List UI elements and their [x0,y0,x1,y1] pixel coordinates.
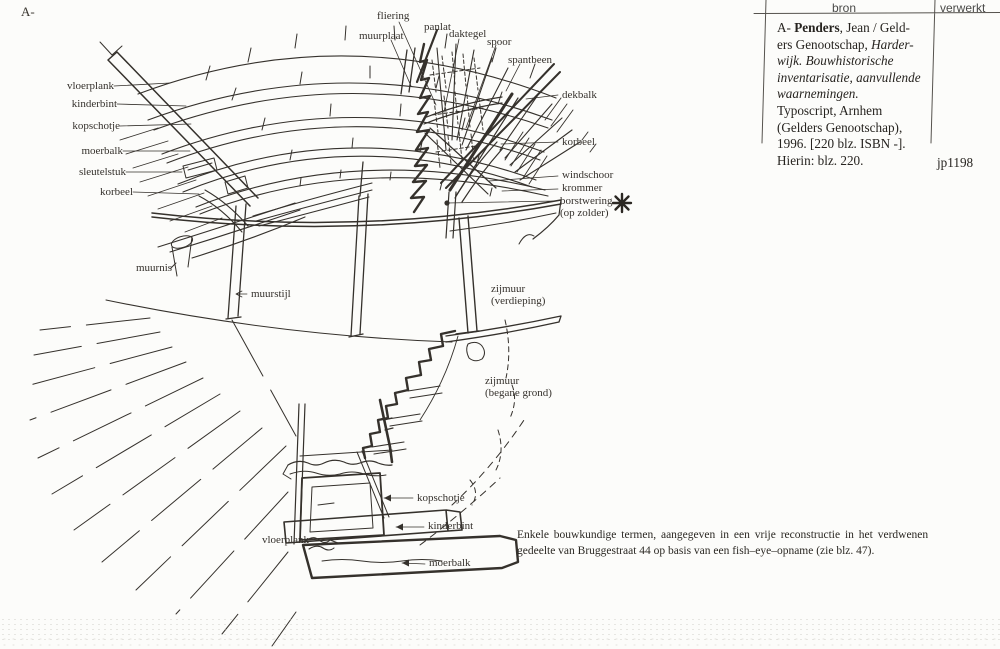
citation-author: Penders [794,20,839,35]
citation-pages: Hierin: blz. 220. [777,153,947,170]
label-muurstijl: muurstijl [251,288,291,300]
label-sleutelstuk: sleutelstuk [30,166,126,178]
label-vloerplank-top: vloerplank [30,80,114,92]
verwerkt-code: jp1198 [937,155,973,171]
citation-author-rest: , Jean / Geld- [840,20,910,35]
label-muurplaat: muurplaat [359,30,404,42]
label-daktegel: daktegel [449,28,486,40]
citation-entry: A- Penders, Jean / Geld- ers Genootschap… [777,20,947,169]
label-zijmuur-begane-grond: zijmuur [485,375,519,387]
label-dekbalk: dekbalk [562,89,597,101]
citation-prefix: A- [777,20,794,35]
label-kopschotje-bottom: kopschotje [417,492,465,504]
figure-caption: Enkele bouwkundige termen, aangegeven in… [517,528,928,559]
floor-rays [30,300,452,646]
citation-title: wijk. Bouwhistorische [777,53,894,68]
citation-publisher: ers Genootschap, [777,37,871,52]
label-moerbalk-top: moerbalk [30,145,123,157]
label-kinderbint-bottom: kinderbint [428,520,473,532]
label-windschoor: windschoor [562,169,613,181]
page-marker: A- [21,4,35,20]
star-icon [613,194,631,212]
label-kinderbint-top: kinderbint [30,98,117,110]
citation-imprint: (Gelders Genootschap), [777,120,947,137]
ceiling-vault [100,26,556,258]
label-korbeel-left: korbeel [30,186,133,198]
table-header-bron: bron [832,1,856,15]
label-vloerplank-bottom: vloerplank [262,534,309,546]
citation-collation: 1996. [220 blz. ISBN -]. [777,136,947,153]
label-panlat: panlat [424,21,451,33]
table-header-verwerkt: verwerkt [940,1,985,15]
label-borstwering-sub: (op zolder) [560,207,609,219]
label-krommer: krommer [562,182,602,194]
citation-title: inventarisatie, aanvullende [777,70,921,85]
scan-noise-strip [0,636,1000,646]
label-borstwering: borstwering [560,195,613,207]
label-spantbeen: spantbeen [508,54,552,66]
label-zijmuur-verdieping: zijmuur [491,283,525,295]
label-kopschotje-top: kopschotje [30,120,120,132]
scanned-page: { "page_marker": "A-", "table": { "bron_… [0,0,1000,649]
beam-assembly [283,400,518,578]
label-korbeel-right: korbeel [562,136,595,148]
citation-title-end: waarnemingen. [777,86,859,101]
caption-line-1: Enkele bouwkundige termen, aangegeven in… [517,528,928,544]
label-muurnis: muurnis [136,262,172,274]
page-stage: A- fliering panlat muurplaat daktegel sp… [0,0,1000,649]
citation-imprint: Typoscript, Arnhem [777,103,947,120]
citation-title-start: Harder- [871,37,913,52]
label-fliering: fliering [377,10,409,22]
label-moerbalk-bottom: moerbalk [429,557,471,569]
label-zijmuur-begane-grond-sub: (begane grond) [485,387,552,399]
label-spoor: spoor [487,36,511,48]
label-zijmuur-verdieping-sub: (verdieping) [491,295,545,307]
caption-line-2: gedeelte van Bruggestraat 44 op basis va… [517,544,928,560]
